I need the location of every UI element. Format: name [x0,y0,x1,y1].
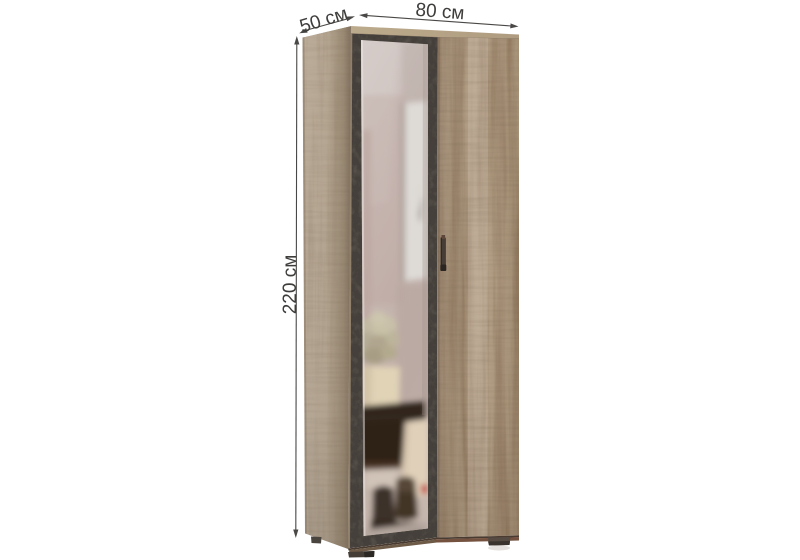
svg-text:220 см: 220 см [280,255,301,315]
svg-text:80 см: 80 см [415,0,465,24]
